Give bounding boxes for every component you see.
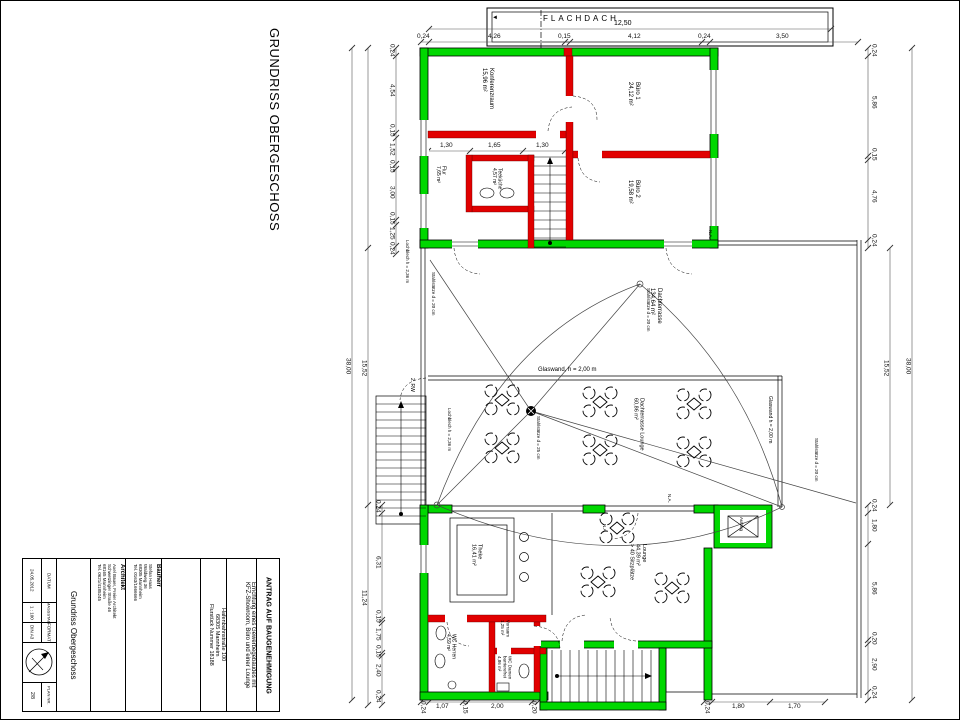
dim-label: 1,30 [440, 142, 453, 149]
dim-label: 3,50 [776, 33, 789, 40]
dim-label: 0,24 [870, 234, 877, 247]
massstab-value: 1 : 100 [30, 606, 35, 620]
dim-label: 6,31 [374, 556, 381, 569]
seating-groups [485, 385, 711, 603]
dim-label: 0,24 [388, 242, 395, 255]
title-block-empty-field [162, 559, 201, 711]
dim-label: 1,80 [870, 519, 877, 532]
plan-number-value: 2/8 [29, 692, 35, 699]
room-label-buero1: Büro 124,12 m² [626, 82, 640, 106]
dim-label: 2,00 [491, 703, 504, 710]
dim-label: 3,00 [388, 186, 395, 199]
room-label-theke: Theke16,41 m² [470, 544, 483, 566]
room-label-konferenzraum: Konferenzraum15,96 m² [480, 68, 494, 109]
dim-label: 1,65 [488, 142, 501, 149]
room-label-flur: Flur7,65 m² [434, 166, 446, 183]
dim-label: 2,40 [374, 664, 381, 677]
dim-label: 1,75 [374, 628, 381, 641]
dim-label: 0,15 [388, 124, 395, 137]
datum-label: DATUM [47, 573, 52, 589]
massstab-label: MASSSTAB [47, 602, 52, 624]
page-title: GRUNDRISS OBERGESCHOSS [266, 28, 281, 231]
dim-label: 0,24 [417, 33, 430, 40]
glass-wall-label: Glaswand, h = 2,00 m [538, 367, 597, 374]
dim-label: 0,20 [530, 701, 537, 714]
steel-column-25-label: Stahlstütze d = 25 cm [536, 416, 541, 459]
steel-column-20-label: Stahlstütze d = 20 cm [814, 438, 819, 481]
dim-label: 0,15 [558, 33, 571, 40]
room-label-vorraum: Vorraum1,25 m² [500, 620, 510, 637]
room-label-wc-damen: WC Damenbarrierefrei4,86 m² [497, 656, 513, 679]
title-block-meta: 24.05.2012 DATUM 1 : 100 MASSSTAB DIN A3… [23, 559, 57, 711]
dim-label: 12,50 [614, 20, 632, 28]
green-walls [420, 48, 772, 710]
dim-label: 0,20 [870, 632, 877, 645]
plan-number-label: PLAN NR. [47, 686, 52, 704]
format-label: FORMAT [47, 623, 52, 642]
stair-exterior [376, 404, 426, 516]
format-value: DIN A3 [30, 625, 35, 639]
dim-label: 0,24 [388, 44, 395, 57]
title-block-site: Hafenbahnstraße 100 68305 Mannheim Flurs… [201, 559, 227, 711]
dim-label: 0,24 [698, 33, 711, 40]
roof-slope-arrow-icon: ◄ [492, 15, 498, 22]
dim-label: 4,26 [488, 33, 501, 40]
dim-label: 0,24 [870, 686, 877, 699]
dim-label: 15,52 [360, 360, 367, 376]
room-label-teekueche: Teeküche4,57 m² [490, 168, 502, 189]
north-arrow-icon [23, 643, 55, 681]
dim-label: 1,30 [536, 142, 549, 149]
dim-label: 0,15 [388, 160, 395, 173]
stair-upper [534, 157, 566, 247]
na-label: N.A. [708, 230, 713, 239]
dim-label: 0,24 [419, 701, 426, 714]
dim-label: 15,52 [882, 360, 889, 376]
dimension-ticks [349, 26, 915, 708]
dimension-lines [352, 29, 912, 705]
flachdach-label: FLACHDACH [543, 14, 619, 23]
room-label-wc-herren: WC Herren4,59 m² [444, 634, 456, 659]
title-block-antrag: ANTRAG AUF BAUGENEHMIGUNG [257, 559, 279, 711]
dim-label: 0,24 [870, 44, 877, 57]
dim-label: 1,25 [388, 227, 395, 240]
glass-wall-label-vertical: Glaswand h = 2,00 m [766, 396, 772, 443]
title-block: 24.05.2012 DATUM 1 : 100 MASSSTAB DIN A3… [22, 558, 280, 712]
dim-label: 1,70 [788, 703, 801, 710]
stair-main [552, 650, 651, 702]
bar-counter [450, 518, 529, 602]
title-block-bauherr: Bauherr Stefan Haas Waldweg 36 68305 Man… [126, 559, 162, 711]
dim-label: 0,24 [703, 701, 710, 714]
na-label: N.A. [602, 524, 607, 533]
elevator-label: Aufzug [739, 517, 744, 531]
dim-label: 4,12 [628, 33, 641, 40]
na-label: N.A. [667, 494, 672, 503]
perforated-railing-label: Lochblech h = 2,36 m [405, 240, 410, 283]
drawing-sheet: GRUNDRISS OBERGESCHOSS FLACHDACH ◄ 12,50… [0, 0, 960, 720]
title-block-project: Errichtung eines Gewerbegebäudes mit KFZ… [227, 559, 257, 711]
dim-label: 0,15 [870, 148, 877, 161]
architekt-label: Architekt [119, 564, 125, 711]
bauherr-label: Bauherr [155, 564, 161, 711]
title-block-plan-name: Grundriss Obergeschoss [57, 559, 91, 711]
dim-label: 38,00 [904, 358, 911, 374]
dim-label: 0,15 [388, 212, 395, 225]
dim-label: 1,07 [436, 703, 449, 710]
dim-label: 1,52 [388, 143, 395, 156]
datum-value: 24.05.2012 [30, 569, 35, 592]
room-label-dachterrasse-lounge: Dachterrasse Lounge60,86 m² [632, 398, 645, 451]
room-label-lounge: Lounge44,39 m²> 40 Sitzplätze [628, 544, 647, 580]
steel-column-20-label: Stahlstütze d = 20 cm [646, 288, 651, 331]
dim-label: 38,00 [344, 358, 351, 374]
room-label-buero2: Büro 219,58 m² [626, 180, 640, 204]
dim-label: 5,86 [870, 96, 877, 109]
dim-label: 5,86 [870, 582, 877, 595]
dim-label: 0,15 [461, 701, 468, 714]
dim-label: 1,80 [732, 703, 745, 710]
dim-label: 0,24 [374, 500, 381, 513]
dim-label: 0,24 [374, 690, 381, 703]
dim-label: 4,76 [870, 190, 877, 203]
steel-column-20-label: Stahlstütze d = 20 cm [431, 272, 436, 315]
perforated-railing-label: Lochblech h = 2,36 m [447, 408, 452, 451]
title-block-architekt: Architekt Axel Bauer, Freier Architekt S… [91, 559, 126, 711]
dim-label: 4,54 [388, 84, 395, 97]
dim-label: 0,24 [870, 499, 877, 512]
dim-label: 0,15 [374, 610, 381, 623]
dim-label: 2,90 [870, 658, 877, 671]
dim-label: 11,24 [360, 590, 367, 606]
escape-route-label: 2. RW [408, 378, 414, 392]
dim-label: 0,15 [374, 645, 381, 658]
